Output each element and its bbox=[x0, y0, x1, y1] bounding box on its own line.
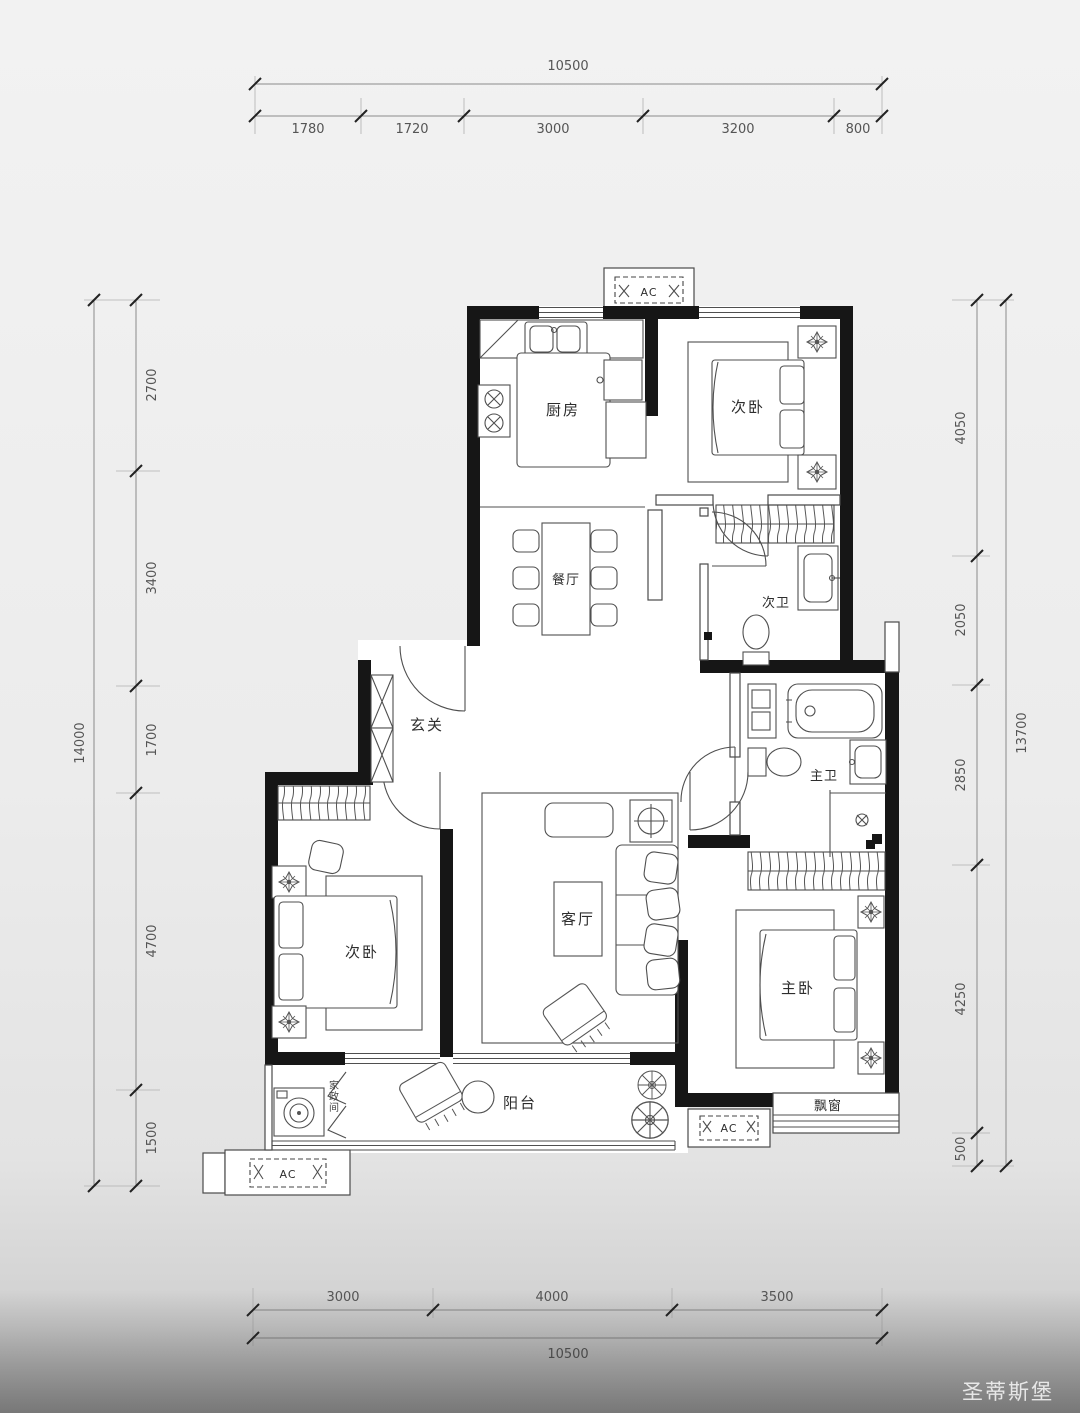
bay-window: 飘窗 bbox=[773, 1093, 899, 1133]
utility-label: 家政间 bbox=[327, 1079, 339, 1113]
dimension-right: 13700 4050 2050 2850 4250 500 bbox=[952, 294, 1030, 1172]
toilet bbox=[743, 615, 769, 649]
stool bbox=[307, 839, 345, 875]
dim-right-seg: 500 bbox=[954, 1137, 969, 1162]
sofa-cushion bbox=[643, 851, 679, 885]
dim-left-total: 14000 bbox=[73, 722, 88, 763]
dim-right-seg: 4250 bbox=[954, 982, 969, 1015]
kitchen-label: 厨房 bbox=[546, 401, 580, 419]
kitchen-cabinet bbox=[604, 360, 642, 400]
floorplan-drawing: 10500 1780 1720 3000 3200 800 3000 4000 … bbox=[0, 0, 1080, 1413]
dim-left-seg: 1700 bbox=[145, 723, 160, 756]
stove bbox=[478, 385, 510, 437]
pillow bbox=[780, 410, 804, 448]
dim-left-seg: 2700 bbox=[145, 368, 160, 401]
plant bbox=[632, 1102, 668, 1138]
living-label: 客厅 bbox=[561, 910, 595, 928]
balcony-table bbox=[462, 1081, 494, 1113]
pillow bbox=[834, 936, 855, 980]
balcony-label: 阳台 bbox=[503, 1094, 537, 1112]
dim-top-seg: 1720 bbox=[395, 122, 428, 137]
ac-label: AC bbox=[720, 1122, 737, 1135]
dim-left-seg: 3400 bbox=[145, 561, 160, 594]
ac-platform-bottom-middle: AC bbox=[688, 1109, 770, 1147]
bottom-vignette bbox=[0, 1290, 1080, 1413]
bath-master-label: 主卫 bbox=[810, 769, 838, 784]
bay-window-label: 飘窗 bbox=[814, 1098, 842, 1114]
dim-right-total: 13700 bbox=[1015, 712, 1030, 753]
toilet-tank bbox=[743, 652, 769, 665]
plant bbox=[638, 1071, 666, 1099]
entry-label: 玄关 bbox=[410, 716, 444, 734]
dining-label: 餐厅 bbox=[552, 572, 580, 588]
fridge bbox=[606, 402, 646, 458]
dim-top-seg: 3200 bbox=[721, 122, 754, 137]
sofa-cushion bbox=[643, 923, 679, 958]
toilet-tank bbox=[748, 748, 766, 776]
pillow bbox=[279, 902, 303, 948]
ac-label: AC bbox=[640, 286, 657, 299]
pillow bbox=[780, 366, 804, 404]
ac-label: AC bbox=[279, 1168, 296, 1181]
ac-platform-top: AC bbox=[604, 268, 694, 310]
bath-secondary-label: 次卫 bbox=[762, 595, 790, 611]
dim-right-seg: 2850 bbox=[954, 758, 969, 791]
dim-top-seg: 800 bbox=[846, 122, 871, 137]
watermark: 圣蒂斯堡 bbox=[962, 1380, 1054, 1404]
dining: 餐厅 bbox=[513, 523, 617, 635]
dimension-top: 10500 1780 1720 3000 3200 800 bbox=[249, 59, 888, 137]
dim-top-total: 10500 bbox=[547, 59, 588, 74]
toilet bbox=[767, 748, 801, 776]
bathtub bbox=[788, 684, 882, 738]
bedroom-top-label: 次卧 bbox=[731, 398, 765, 416]
dim-right-seg: 2050 bbox=[954, 603, 969, 636]
dim-top-seg: 1780 bbox=[291, 122, 324, 137]
ac-platform-bottom-left: AC bbox=[203, 1150, 350, 1195]
dim-right-seg: 4050 bbox=[954, 411, 969, 444]
dim-top-seg: 3000 bbox=[536, 122, 569, 137]
pillow bbox=[834, 988, 855, 1032]
dim-left-seg: 4700 bbox=[145, 924, 160, 957]
sofa-cushion bbox=[646, 957, 681, 990]
dimension-left: 14000 2700 3400 1700 4700 1500 bbox=[73, 294, 160, 1192]
sofa-cushion bbox=[645, 887, 681, 921]
dim-left-seg: 1500 bbox=[145, 1121, 160, 1154]
bedroom-left-label: 次卧 bbox=[345, 943, 379, 961]
pillow bbox=[279, 954, 303, 1000]
tv-console bbox=[545, 803, 613, 837]
floorplan-page: 10500 1780 1720 3000 3200 800 3000 4000 … bbox=[0, 0, 1080, 1413]
bedroom-master-label: 主卧 bbox=[781, 979, 815, 997]
